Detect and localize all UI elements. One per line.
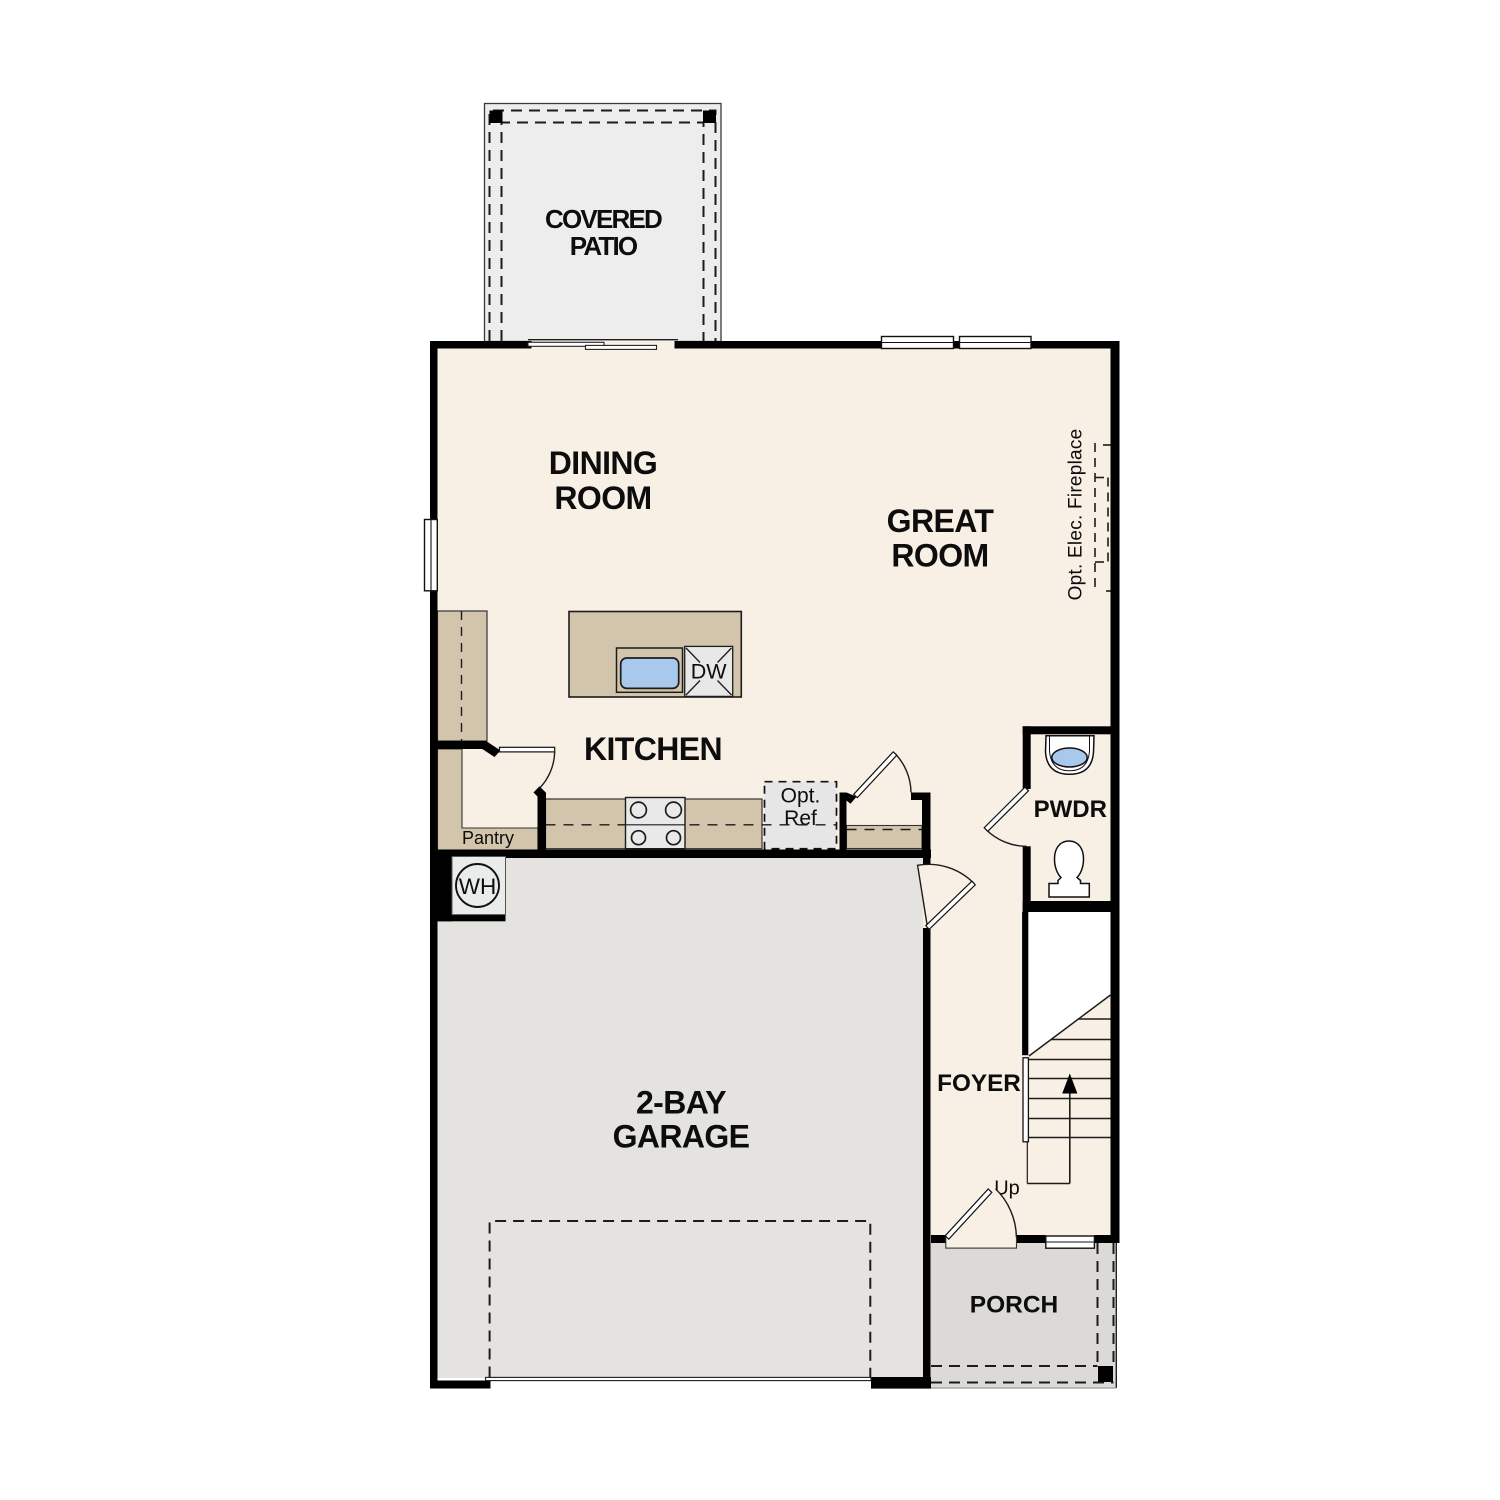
svg-text:PWDR: PWDR [1034,796,1107,823]
svg-text:Ref: Ref [784,807,817,830]
svg-text:PATIO: PATIO [570,231,638,261]
svg-text:Opt.: Opt. [781,784,821,807]
svg-text:Pantry: Pantry [462,828,514,848]
svg-text:DW: DW [691,660,728,684]
svg-text:FOYER: FOYER [937,1070,1021,1097]
svg-text:GARAGE: GARAGE [613,1119,750,1155]
svg-text:ROOM: ROOM [554,480,651,516]
svg-text:ROOM: ROOM [891,538,988,574]
svg-text:KITCHEN: KITCHEN [584,731,722,767]
svg-text:COVERED: COVERED [545,204,662,234]
svg-text:WH: WH [459,874,497,899]
svg-text:DINING: DINING [549,445,657,481]
svg-text:PORCH: PORCH [970,1292,1058,1319]
svg-text:Opt. Elec. Fireplace: Opt. Elec. Fireplace [1066,429,1087,601]
svg-text:2-BAY: 2-BAY [636,1085,726,1121]
svg-text:GREAT: GREAT [887,503,995,539]
